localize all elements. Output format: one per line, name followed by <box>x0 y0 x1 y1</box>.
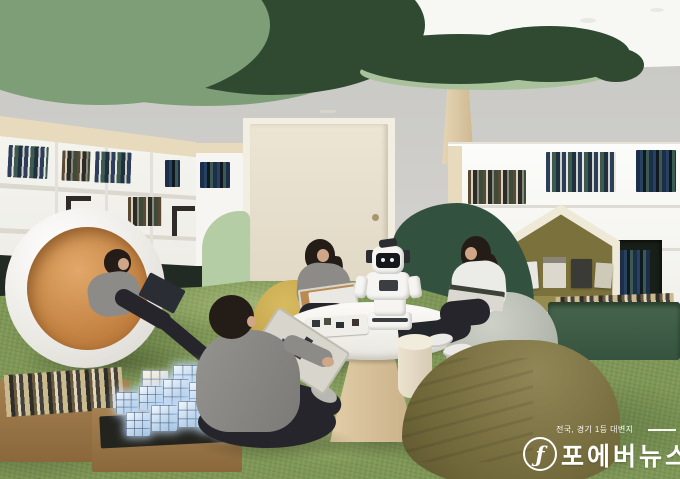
shelf-divider <box>462 205 680 208</box>
books <box>468 170 526 204</box>
books <box>128 197 162 226</box>
forever-news-logo-icon: ƒ <box>523 437 557 471</box>
books <box>165 160 180 187</box>
tree-canopy <box>588 48 644 82</box>
wall-sign <box>320 110 336 113</box>
books <box>94 151 131 183</box>
picture-book <box>594 262 613 288</box>
robot-eye <box>381 258 385 262</box>
books <box>636 150 676 192</box>
ceiling-light <box>580 18 596 23</box>
books <box>620 250 650 296</box>
boy-center-hand <box>322 357 334 367</box>
watermark-rule <box>648 429 676 431</box>
pod-boy-face <box>118 258 129 270</box>
toy-block <box>324 318 331 325</box>
toy-block <box>336 322 344 328</box>
side-stool-top <box>396 334 434 350</box>
books <box>546 152 616 192</box>
girl-left-face <box>317 249 329 262</box>
watermark-title: 포에버뉴스 <box>561 437 680 473</box>
glowing-cube <box>126 412 150 436</box>
ceiling-light <box>650 8 664 12</box>
toy-block <box>312 320 320 327</box>
robot-tread <box>372 318 408 322</box>
glowing-cube <box>116 392 138 414</box>
library-rendering: 전국, 경기 1등 대변지 ƒ 포에버뉴스 <box>0 0 680 479</box>
books <box>200 162 230 188</box>
glowing-cube <box>151 405 177 431</box>
door-knob <box>372 214 379 221</box>
bookend <box>172 206 195 236</box>
picture-book <box>543 257 566 288</box>
robot-eye <box>390 258 394 262</box>
books <box>7 145 49 179</box>
girl-right-face <box>465 247 477 260</box>
robot-face-screen <box>376 253 400 268</box>
watermark-tagline: 전국, 경기 1등 대변지 <box>556 424 633 435</box>
robot-chest-panel <box>379 280 398 291</box>
books <box>61 151 90 182</box>
picture-book <box>571 259 592 288</box>
toy-block <box>352 319 359 326</box>
boy-center-ear <box>247 316 256 327</box>
